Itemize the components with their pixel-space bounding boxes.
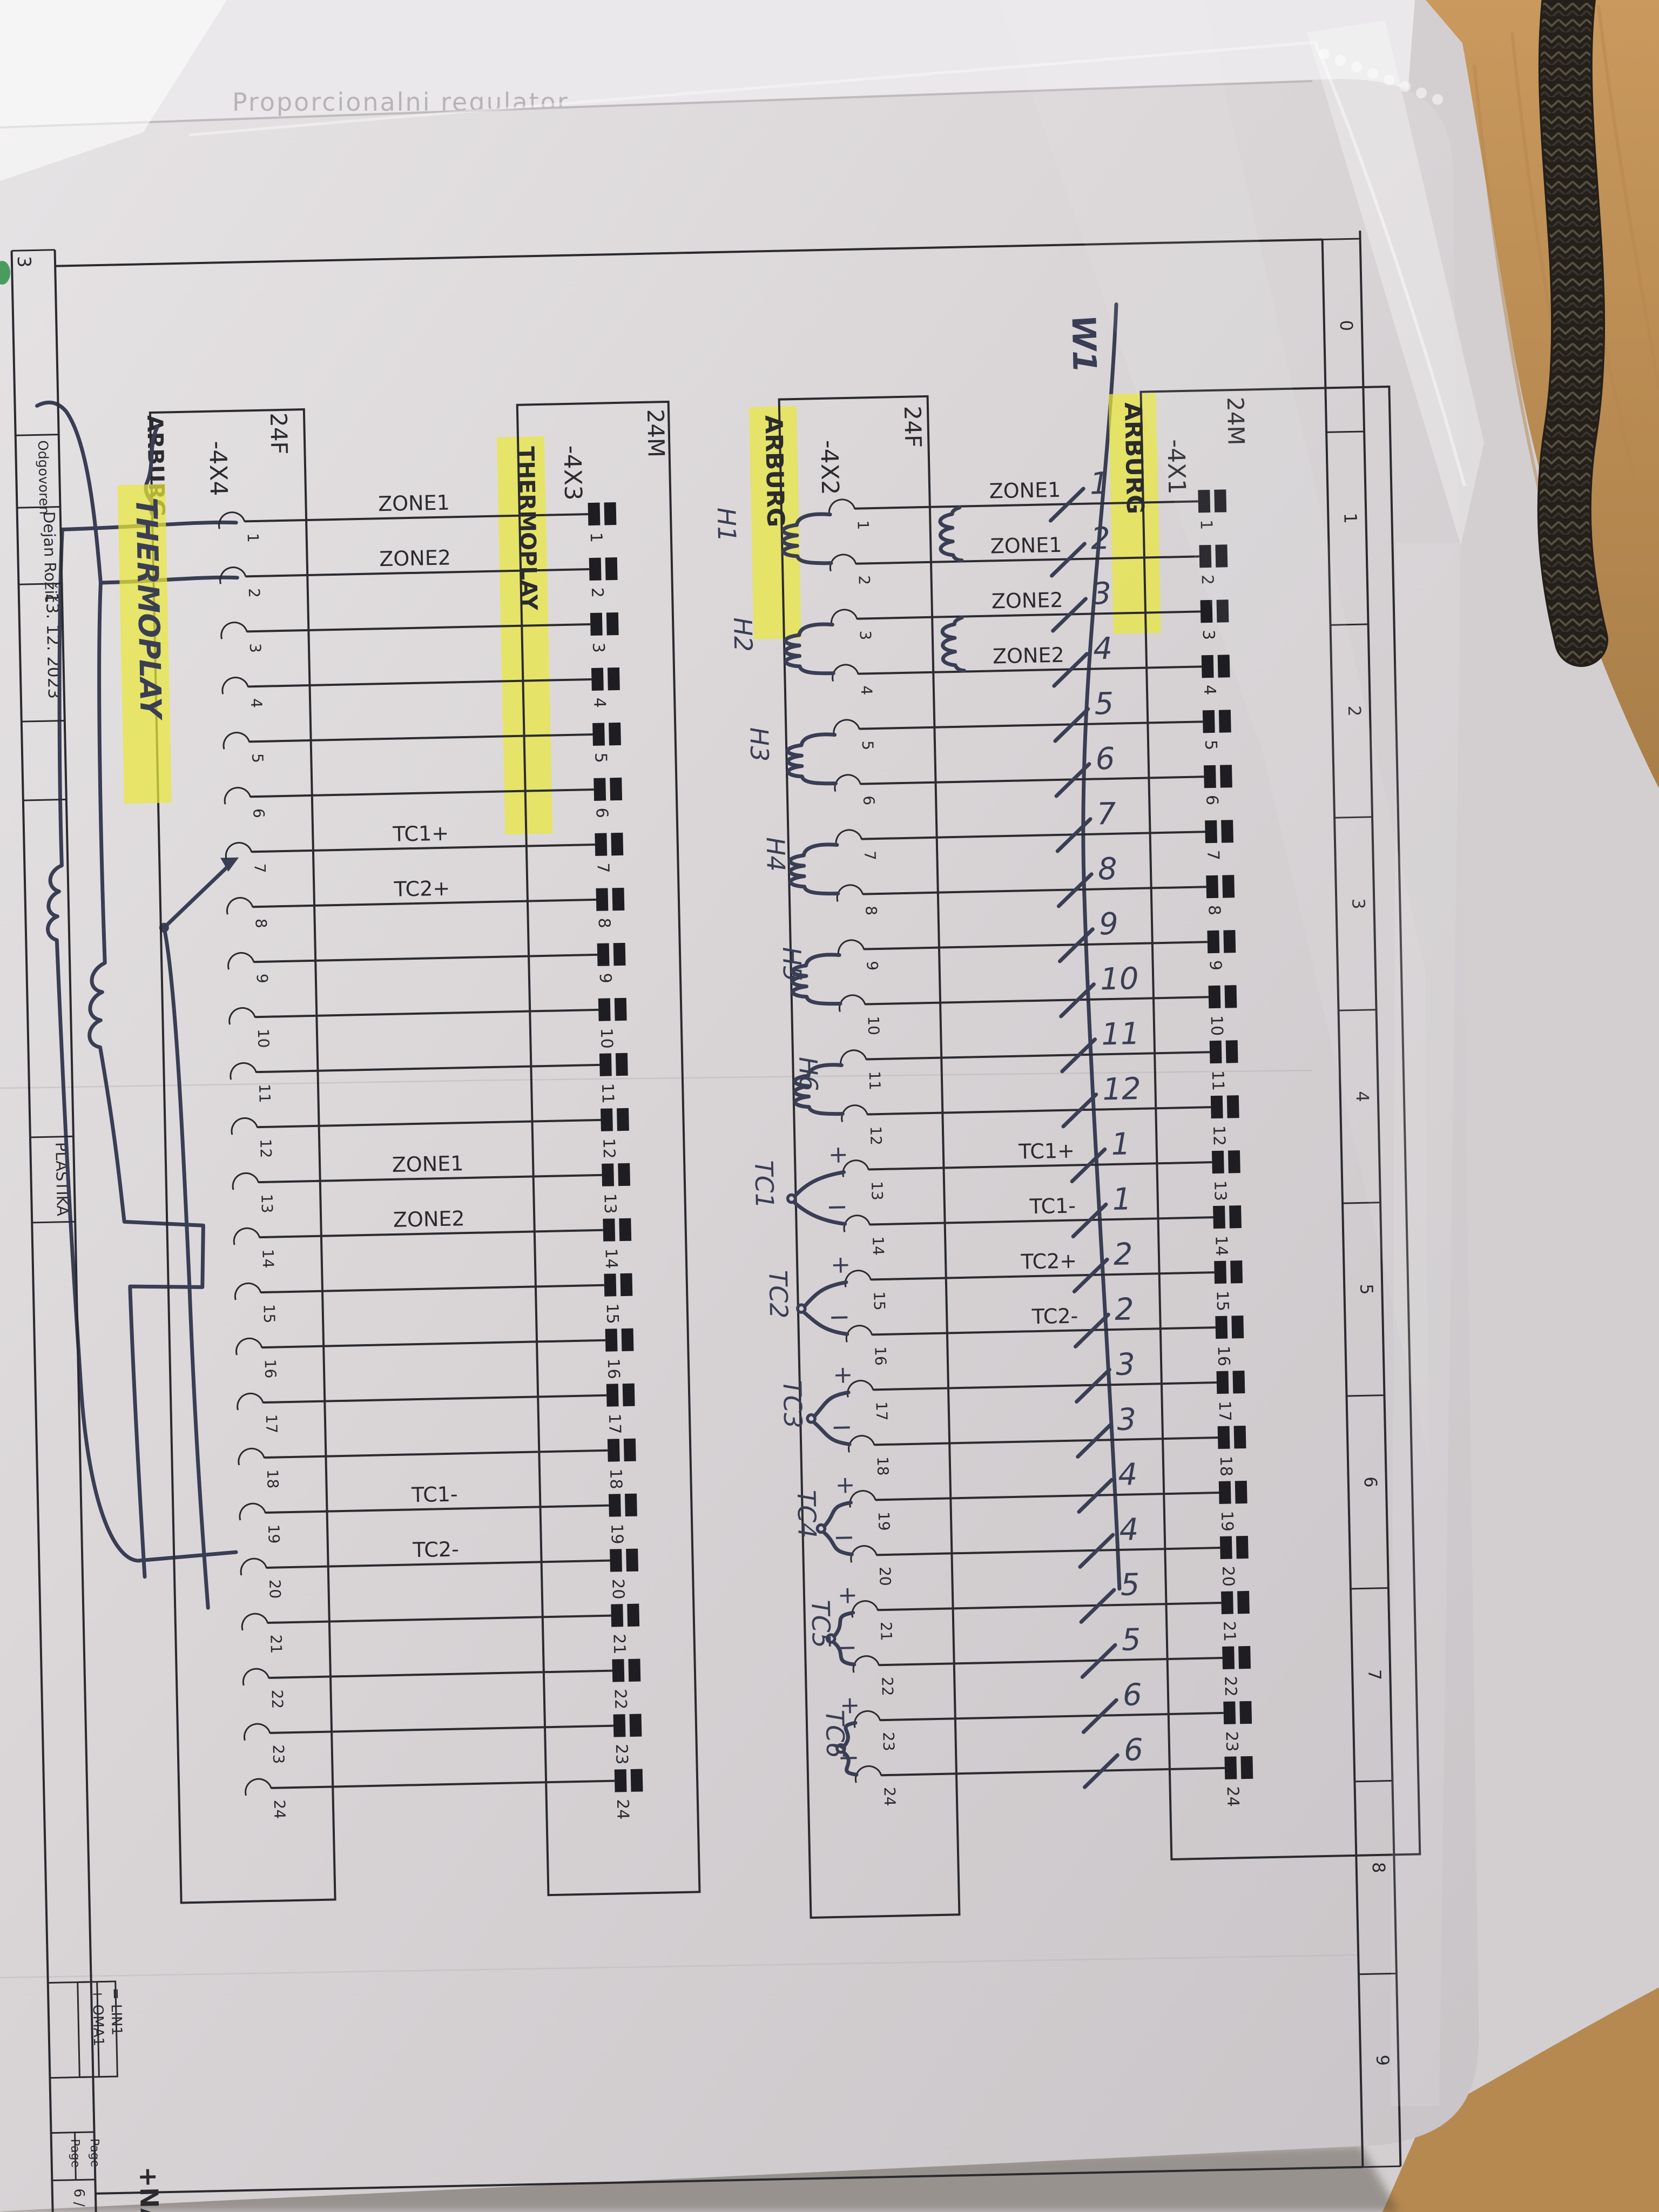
pin-number: 8 xyxy=(595,918,613,928)
pin-number: 5 xyxy=(591,752,610,763)
pin-number: 11 xyxy=(598,1083,617,1104)
pin-number: 4 xyxy=(590,697,609,708)
pin-number: 10 xyxy=(865,1016,883,1035)
handwritten-wire-number: 2 xyxy=(1113,1237,1133,1272)
wire-label: TC1- xyxy=(1029,1193,1076,1218)
pin-male xyxy=(591,668,604,691)
pin-number: 22 xyxy=(268,1689,286,1709)
pin-male xyxy=(631,1769,643,1791)
pin-number: 17 xyxy=(262,1414,281,1433)
title-corner-number: 3 xyxy=(13,255,35,267)
wire-label: ZONE2 xyxy=(393,1206,465,1232)
pin-number: 2 xyxy=(588,587,606,598)
pin-number: 4 xyxy=(247,698,265,709)
handwritten-wire-number: 3 xyxy=(1116,1347,1136,1382)
pin-number: 24 xyxy=(613,1799,632,1820)
pin-number: 9 xyxy=(863,961,881,971)
pin-number: 3 xyxy=(857,630,874,640)
wire-label: TC2- xyxy=(1031,1304,1078,1328)
tc-plus-sign: + xyxy=(833,1361,853,1389)
titleblock-divider xyxy=(17,507,60,508)
titleblock-divider xyxy=(22,720,65,721)
pin-male xyxy=(613,1714,626,1737)
pin-male xyxy=(1232,1371,1245,1393)
pin-number: 23 xyxy=(1222,1731,1241,1752)
pin-male xyxy=(619,1218,631,1241)
pin-number: 10 xyxy=(254,1029,273,1048)
pin-male xyxy=(1215,1316,1228,1339)
titleblock-divider xyxy=(32,1222,75,1223)
pin-number: 22 xyxy=(1220,1676,1240,1697)
pin-number: 20 xyxy=(876,1567,894,1586)
thermocouple-tag: TC4 xyxy=(792,1489,822,1539)
pin-male xyxy=(603,1218,615,1241)
heater-tag: H1 xyxy=(712,507,741,542)
pin-number: 20 xyxy=(1218,1566,1238,1587)
pin-number: 13 xyxy=(600,1193,619,1214)
thermocouple-tag: TC2 xyxy=(763,1270,793,1319)
pin-number: 14 xyxy=(869,1236,887,1256)
pin-number: 12 xyxy=(599,1138,618,1159)
pin-number: 17 xyxy=(873,1401,891,1421)
pin-male xyxy=(1220,765,1232,787)
thermocouple-tag: TC6 xyxy=(820,1709,850,1758)
pin-male xyxy=(1222,875,1235,898)
handwritten-cable-tag: W1 xyxy=(1064,314,1103,373)
pin-male xyxy=(602,1163,614,1186)
handwritten-wire-number: 12 xyxy=(1102,1071,1142,1107)
pin-male xyxy=(1219,710,1231,732)
handwritten-wire-number: 6 xyxy=(1122,1677,1142,1713)
wire-label: TC1+ xyxy=(392,821,449,846)
pin-male xyxy=(1223,930,1236,953)
handwritten-wire-number: 3 xyxy=(1117,1402,1137,1438)
pin-male xyxy=(595,833,607,855)
pin-number: 17 xyxy=(1215,1400,1235,1421)
tc-plus-sign: + xyxy=(835,1471,855,1499)
handwritten-wire-number: 10 xyxy=(1100,961,1139,997)
pin-male xyxy=(609,1494,621,1516)
pin-number: 8 xyxy=(1204,905,1223,916)
pin-number: 24 xyxy=(1223,1786,1243,1807)
pin-male xyxy=(613,943,626,966)
handwritten-wire-number: 6 xyxy=(1123,1732,1143,1768)
handwritten-wire-number: 6 xyxy=(1095,741,1115,777)
tc-minus-sign: − xyxy=(828,1301,851,1332)
titleblock-divider xyxy=(52,2180,95,2181)
frame-scale-divider xyxy=(1363,2166,1400,2167)
pin-number: 11 xyxy=(866,1071,884,1090)
pin-number: 23 xyxy=(879,1732,898,1751)
tc-minus-sign: − xyxy=(826,1191,848,1222)
handwritten-wire-number: 4 xyxy=(1093,631,1113,667)
pin-male xyxy=(626,1549,638,1572)
frame-scale-divider xyxy=(1323,239,1360,239)
pin-number: 6 xyxy=(860,795,878,806)
pin-number: 11 xyxy=(1208,1070,1228,1091)
pin-number: 23 xyxy=(612,1744,631,1765)
tc-minus-sign: − xyxy=(835,1632,857,1663)
pin-male xyxy=(1229,1205,1242,1228)
photo-of-wiring-diagram: Proporcionalni regulator 3 Odgovoren Dej… xyxy=(0,0,1659,2212)
pin-number: 12 xyxy=(867,1126,885,1145)
pin-male xyxy=(612,1659,624,1682)
pin-male xyxy=(1223,1701,1236,1724)
pin-number: 6 xyxy=(592,807,611,818)
pin-number: 22 xyxy=(878,1677,896,1696)
pin-number: 15 xyxy=(870,1291,888,1311)
frame-column-number: 5 xyxy=(1356,1284,1377,1295)
pin-number: 10 xyxy=(597,1028,616,1049)
pin-male xyxy=(1221,1591,1233,1614)
pin-male xyxy=(615,998,627,1021)
wire-label: ZONE1 xyxy=(989,478,1061,503)
scene-canvas: Proporcionalni regulator 3 Odgovoren Dej… xyxy=(0,0,1659,2212)
wire-label: TC1+ xyxy=(1018,1138,1075,1163)
pin-male xyxy=(627,1604,639,1627)
frame-column-number: 6 xyxy=(1360,1476,1381,1488)
pin-male xyxy=(1210,1041,1222,1063)
pin-number: 4 xyxy=(1200,685,1219,696)
tc-minus-sign: − xyxy=(831,1412,853,1442)
pin-male xyxy=(597,943,610,966)
handwritten-wire-number: 7 xyxy=(1096,797,1116,832)
pin-number: 7 xyxy=(594,862,612,873)
pin-number: 15 xyxy=(603,1303,622,1324)
title-page-number: 6 / 8 xyxy=(71,2188,87,2212)
frame-scale-divider xyxy=(1351,1588,1388,1588)
pin-male xyxy=(604,1273,616,1296)
pin-male xyxy=(610,1549,622,1572)
handwritten-wire-number: 3 xyxy=(1092,576,1112,612)
pin-number: 5 xyxy=(859,740,876,751)
pin-male xyxy=(1218,655,1230,677)
pin-male xyxy=(625,1494,637,1516)
pin-number: 8 xyxy=(252,919,270,929)
pin-number: 22 xyxy=(611,1689,630,1710)
connector-designator: -4X2 xyxy=(815,440,844,495)
pin-number: 19 xyxy=(607,1523,626,1545)
pin-male xyxy=(1202,655,1214,678)
pin-number: 13 xyxy=(258,1193,276,1213)
tc-minus-sign: − xyxy=(833,1522,855,1553)
company-label--4X2: ARBURG xyxy=(759,415,789,527)
pin-number: 13 xyxy=(1210,1180,1230,1201)
pin-male xyxy=(606,612,619,635)
pin-male xyxy=(1225,985,1237,1008)
pin-number: 19 xyxy=(265,1524,283,1543)
pin-number: 9 xyxy=(596,973,615,983)
pin-number: 11 xyxy=(255,1084,274,1103)
pin-male xyxy=(1211,1096,1223,1118)
pin-male xyxy=(612,888,624,911)
pin-number: 16 xyxy=(871,1346,889,1366)
handwritten-wire-number: 2 xyxy=(1090,521,1110,557)
pin-number: 21 xyxy=(609,1634,629,1655)
frame-column-number: 7 xyxy=(1364,1669,1385,1681)
pin-male xyxy=(617,1108,629,1131)
titleblock-divider xyxy=(18,584,62,585)
pin-number: 23 xyxy=(269,1744,288,1764)
pin-number: 14 xyxy=(259,1249,277,1268)
pin-number: 16 xyxy=(604,1358,623,1379)
pin-male xyxy=(615,1769,627,1792)
pin-male xyxy=(601,1108,613,1131)
thermocouple-tag: TC1 xyxy=(749,1160,779,1209)
tc-plus-sign: + xyxy=(837,1581,858,1609)
pin-male xyxy=(1214,1261,1226,1284)
pin-number: 17 xyxy=(605,1413,624,1434)
handwritten-wire-number: 5 xyxy=(1094,686,1114,722)
handwritten-wire-number: 5 xyxy=(1120,1567,1140,1603)
pin-male xyxy=(598,998,611,1021)
frame-scale-divider xyxy=(1326,431,1364,432)
handwritten-wire-number: 1 xyxy=(1112,1182,1132,1217)
pin-number: 2 xyxy=(855,575,873,585)
pin-male xyxy=(1236,1536,1249,1559)
frame-scale-divider xyxy=(1359,1973,1397,1974)
connector-gender-label: 24F xyxy=(265,413,293,455)
wire-label: ZONE1 xyxy=(990,533,1062,558)
pin-number: 12 xyxy=(257,1139,275,1158)
pin-number: 5 xyxy=(248,753,266,764)
pin-male xyxy=(608,1439,620,1461)
wire-label: ZONE2 xyxy=(379,545,451,571)
pin-male xyxy=(1222,1646,1235,1669)
pin-male xyxy=(1226,1040,1238,1063)
pin-number: 16 xyxy=(1213,1345,1233,1366)
pin-male xyxy=(608,667,620,690)
frame-column-number: 9 xyxy=(1372,2055,1393,2066)
pin-number: 14 xyxy=(601,1248,621,1269)
title-responsible-name: Dejan Rožič xyxy=(40,511,60,603)
connector-designator: -4X4 xyxy=(204,441,232,496)
pin-male xyxy=(599,1053,612,1076)
pin-male xyxy=(628,1659,640,1682)
pin-number: 3 xyxy=(589,642,608,653)
pin-male xyxy=(1220,1536,1232,1559)
pin-number: 18 xyxy=(874,1456,892,1476)
pin-number: 21 xyxy=(877,1622,895,1641)
pin-number: 1 xyxy=(854,520,872,530)
titleblock-page-divider xyxy=(75,2133,76,2180)
titleblock-divider xyxy=(51,2132,95,2133)
wire-label: TC2- xyxy=(412,1537,459,1562)
title-next-ref: +NAC/4 xyxy=(134,2166,165,2212)
pin-male xyxy=(606,1384,619,1406)
pin-number: 14 xyxy=(1211,1235,1231,1256)
pin-male xyxy=(592,723,605,746)
pin-number: 7 xyxy=(1203,850,1222,861)
pin-number: 1 xyxy=(244,533,262,543)
handwritten-wire-number: 1 xyxy=(1111,1127,1131,1162)
thermocouple-tag: TC5 xyxy=(806,1600,836,1649)
pin-male xyxy=(596,888,608,911)
pin-number: 9 xyxy=(1206,960,1225,971)
pin-number: 20 xyxy=(608,1579,628,1600)
pin-number: 24 xyxy=(271,1799,289,1819)
pin-male xyxy=(616,1053,628,1076)
titleblock-divider xyxy=(30,1136,73,1137)
frame-scale-divider xyxy=(1354,1781,1392,1781)
pin-number: 6 xyxy=(249,808,267,819)
pin-male xyxy=(611,1604,623,1627)
titleblock-divider xyxy=(16,435,59,436)
frame-scale-divider xyxy=(1346,1395,1384,1396)
connector-gender-label: 24M xyxy=(642,409,670,458)
pin-male xyxy=(1209,986,1221,1008)
pin-male xyxy=(1207,930,1219,953)
pin-male xyxy=(1240,1756,1253,1779)
connector-gender-label: 24F xyxy=(899,406,927,448)
pin-male xyxy=(623,1384,635,1406)
pin-male xyxy=(1228,1150,1240,1173)
pin-number: 3 xyxy=(1199,630,1218,640)
pin-number: 15 xyxy=(260,1304,278,1323)
tc-plus-sign: + xyxy=(828,1141,848,1169)
pin-number: 3 xyxy=(246,643,264,653)
pin-male xyxy=(1238,1646,1251,1669)
pin-male xyxy=(605,1328,618,1351)
heater-tag: H3 xyxy=(744,727,774,762)
braided-cable xyxy=(1564,0,1581,640)
pin-number: 18 xyxy=(606,1468,625,1489)
pin-male xyxy=(589,558,602,581)
wire-label: ZONE2 xyxy=(993,643,1064,669)
pin-male xyxy=(1219,1481,1231,1504)
thermocouple-tag: TC3 xyxy=(778,1380,808,1429)
pin-male xyxy=(588,503,601,525)
pin-male xyxy=(618,1163,630,1186)
pin-male xyxy=(1221,820,1233,842)
handwritten-wire-number: 4 xyxy=(1119,1512,1139,1548)
handwritten-wire-number: 4 xyxy=(1118,1457,1138,1493)
handwritten-wire-number: 2 xyxy=(1114,1292,1134,1327)
pin-number: 20 xyxy=(266,1579,284,1599)
wire-label: ZONE1 xyxy=(378,490,450,516)
pin-number: 2 xyxy=(245,588,263,598)
connector-designator: -4X3 xyxy=(558,445,586,501)
pin-male xyxy=(1218,1426,1230,1449)
pin-male xyxy=(622,1328,634,1351)
tc-plus-sign: + xyxy=(831,1251,851,1279)
pin-male xyxy=(605,557,618,580)
wire-label: ZONE1 xyxy=(392,1151,463,1177)
pin-male xyxy=(1230,1260,1243,1283)
pin-male xyxy=(604,502,617,525)
pin-number: 1 xyxy=(586,532,605,543)
frame-column-number: 0 xyxy=(1336,320,1357,331)
wire-label: TC2+ xyxy=(1020,1249,1077,1273)
pin-male xyxy=(1234,1426,1246,1448)
heater-tag: H6 xyxy=(793,1056,823,1091)
pin-number: 18 xyxy=(264,1469,282,1488)
pin-number: 10 xyxy=(1207,1015,1226,1036)
pin-male xyxy=(630,1714,642,1737)
pin-number: 21 xyxy=(267,1634,285,1654)
pin-male xyxy=(1213,1206,1225,1229)
pin-number: 19 xyxy=(1217,1510,1237,1532)
pin-number: 19 xyxy=(875,1512,893,1531)
pin-male xyxy=(1212,1151,1224,1174)
frame-column-number: 8 xyxy=(1368,1862,1389,1873)
pin-number: 8 xyxy=(862,906,880,916)
handwritten-wire-number: 8 xyxy=(1097,852,1117,887)
pin-male xyxy=(1205,820,1217,843)
pin-male xyxy=(1231,1316,1244,1338)
pin-male xyxy=(1203,710,1215,733)
pin-male xyxy=(1224,1756,1237,1779)
pin-male xyxy=(624,1439,636,1461)
pin-number: 15 xyxy=(1212,1290,1232,1311)
pin-number: 7 xyxy=(861,851,879,861)
pin-male xyxy=(620,1273,632,1296)
handwritten-company-label: THERMOPLAY xyxy=(129,497,168,721)
title-responsible-label: Odgovoren xyxy=(35,440,52,515)
pin-number: 5 xyxy=(1201,740,1220,751)
pin-number: 6 xyxy=(1202,795,1221,806)
pin-number: 7 xyxy=(251,864,268,874)
company-label--4X1: ARBURG xyxy=(1119,402,1149,514)
heater-tag: H4 xyxy=(761,837,791,872)
wire-label: TC1- xyxy=(411,1482,458,1507)
pin-number: 13 xyxy=(868,1181,886,1201)
pin-male xyxy=(1204,765,1216,788)
pin-number: 24 xyxy=(880,1787,899,1806)
pin-male xyxy=(594,778,606,801)
pin-number: 21 xyxy=(1219,1621,1239,1642)
pin-male xyxy=(1239,1701,1252,1724)
heater-tag: H5 xyxy=(777,947,807,982)
frame-column-number: 1 xyxy=(1340,512,1360,524)
heater-tag: H2 xyxy=(728,617,758,652)
handwritten-wire-number: 9 xyxy=(1098,907,1118,942)
pin-male xyxy=(609,723,621,745)
pin-number: 4 xyxy=(858,685,875,696)
pin-number: 9 xyxy=(253,974,271,984)
company-label--4X3: THERMOPLAY xyxy=(513,446,541,611)
handwritten-wire-number: 11 xyxy=(1101,1016,1141,1052)
pin-male xyxy=(1227,1095,1239,1118)
titleblock-divider xyxy=(23,799,66,800)
pin-male xyxy=(590,613,603,636)
pin-number: 18 xyxy=(1216,1455,1236,1476)
pin-male xyxy=(610,778,622,800)
pin-male xyxy=(1216,1371,1229,1394)
pin-male xyxy=(1235,1481,1247,1503)
pin-number: 12 xyxy=(1209,1125,1229,1147)
wire-label: ZONE2 xyxy=(992,588,1063,613)
pin-number: 16 xyxy=(261,1359,280,1378)
handwritten-wire-number: 5 xyxy=(1121,1622,1141,1658)
handwritten-wire-number: 1 xyxy=(1089,466,1109,502)
titleblock-divider xyxy=(12,250,55,251)
pin-male xyxy=(1206,875,1218,898)
pin-male xyxy=(611,833,623,855)
wire-label: TC2+ xyxy=(393,876,450,901)
pin-male xyxy=(1237,1591,1250,1614)
